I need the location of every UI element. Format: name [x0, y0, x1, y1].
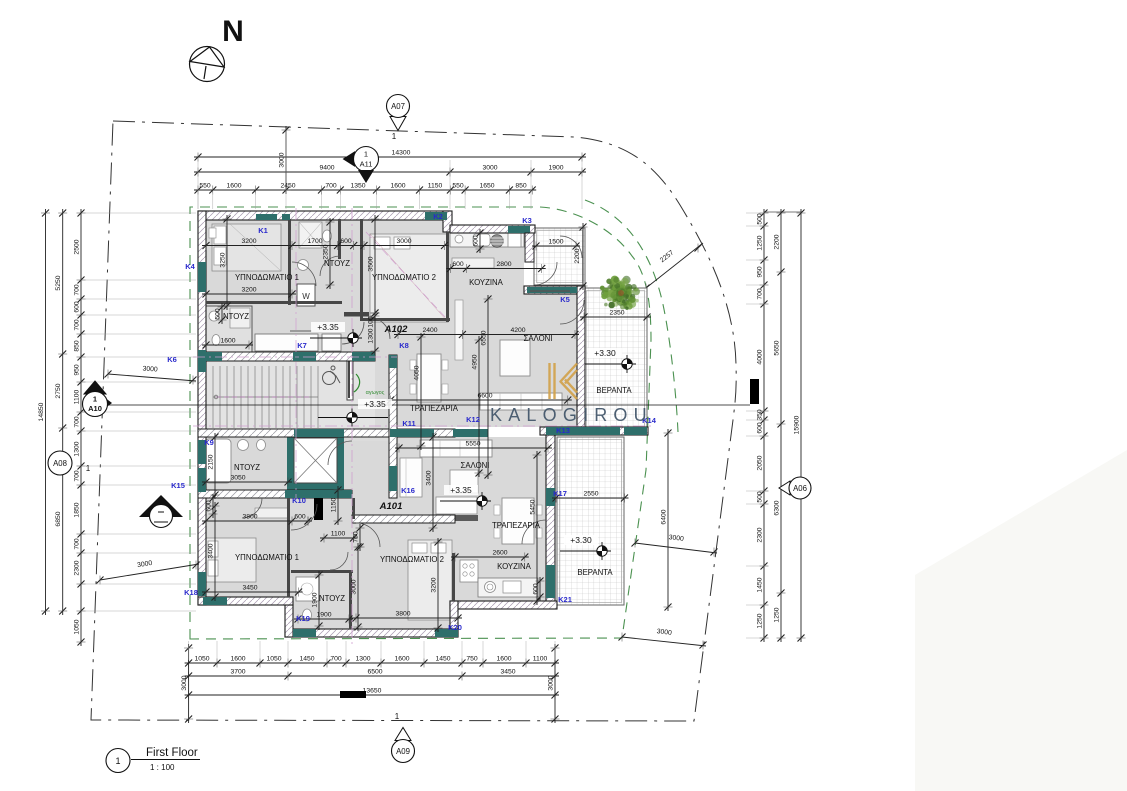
svg-text:700: 700	[757, 288, 764, 300]
svg-text:A10: A10	[88, 404, 102, 413]
svg-text:K12: K12	[466, 415, 480, 424]
svg-text:First Floor: First Floor	[146, 747, 198, 759]
svg-text:A06: A06	[793, 484, 807, 493]
svg-text:3800: 3800	[395, 611, 410, 618]
svg-text:1150: 1150	[331, 497, 338, 512]
svg-text:2500: 2500	[74, 239, 81, 254]
svg-text:1900: 1900	[316, 612, 331, 619]
svg-text:6300: 6300	[774, 500, 781, 515]
svg-text:3200: 3200	[241, 287, 256, 294]
svg-text:1150: 1150	[428, 183, 443, 190]
svg-text:ΚΟΥΖΙΝΑ: ΚΟΥΖΙΝΑ	[469, 278, 504, 287]
svg-text:W: W	[302, 292, 310, 301]
svg-text:14850: 14850	[38, 402, 45, 421]
svg-text:1: 1	[86, 464, 91, 473]
svg-text:A11: A11	[360, 160, 373, 169]
svg-text:ΝΤΟΥΖ: ΝΤΟΥΖ	[223, 312, 249, 321]
svg-text:950: 950	[757, 266, 764, 278]
svg-text:1900: 1900	[548, 165, 563, 172]
svg-text:6850: 6850	[55, 511, 62, 526]
svg-text:2300: 2300	[74, 560, 81, 575]
svg-text:ΤΡΑΠΕΖΑΡΙΑ: ΤΡΑΠΕΖΑΡΙΑ	[492, 521, 541, 530]
svg-text:2050: 2050	[757, 455, 764, 470]
svg-text:3250: 3250	[220, 252, 227, 267]
svg-text:700: 700	[74, 416, 81, 428]
svg-text:4950: 4950	[472, 354, 479, 369]
svg-text:ΝΤΟΥΖ: ΝΤΟΥΖ	[234, 463, 260, 472]
svg-text:N: N	[222, 15, 244, 48]
svg-text:5550: 5550	[465, 441, 480, 448]
svg-text:K19: K19	[296, 614, 310, 623]
svg-text:3000: 3000	[396, 238, 411, 245]
svg-text:ΥΠΝΟΔΩΜΑΤΙΟ 1: ΥΠΝΟΔΩΜΑΤΙΟ 1	[235, 273, 299, 282]
svg-text:ΝΤΟΥΖ: ΝΤΟΥΖ	[324, 259, 350, 268]
svg-text:3200: 3200	[241, 238, 256, 245]
svg-text:ΒΕΡΑΝΤΑ: ΒΕΡΑΝΤΑ	[596, 386, 632, 395]
svg-text:K15: K15	[171, 481, 185, 490]
svg-text:3000: 3000	[181, 675, 188, 690]
svg-text:K18: K18	[184, 588, 198, 597]
svg-text:1500: 1500	[548, 239, 563, 246]
svg-text:K17: K17	[553, 489, 567, 498]
svg-text:6500: 6500	[367, 669, 382, 676]
svg-text:2350: 2350	[609, 310, 624, 317]
svg-text:K10: K10	[292, 496, 306, 505]
svg-text:K16: K16	[401, 486, 415, 495]
svg-text:1600: 1600	[220, 338, 235, 345]
svg-text:2750: 2750	[55, 383, 62, 398]
svg-text:1250: 1250	[757, 613, 764, 628]
svg-text:2400: 2400	[422, 327, 437, 334]
svg-text:K9: K9	[204, 438, 214, 447]
svg-text:600: 600	[74, 301, 81, 313]
svg-text:950: 950	[74, 364, 81, 376]
svg-text:K6: K6	[167, 355, 177, 364]
svg-text:1450: 1450	[757, 577, 764, 592]
svg-text:6400: 6400	[661, 509, 668, 524]
svg-text:3000: 3000	[482, 165, 497, 172]
svg-text:1250: 1250	[757, 235, 764, 250]
svg-text:ΚΟΥΖΙΝΑ: ΚΟΥΖΙΝΑ	[497, 562, 532, 571]
svg-text:+3.35: +3.35	[450, 485, 472, 495]
svg-text:700: 700	[74, 470, 81, 482]
svg-text:1900: 1900	[312, 592, 319, 607]
svg-text:1300: 1300	[368, 328, 375, 343]
svg-text:1650: 1650	[479, 183, 494, 190]
svg-text:600: 600	[294, 514, 306, 521]
svg-text:+3.35: +3.35	[364, 399, 386, 409]
svg-text:15900: 15900	[794, 415, 801, 434]
svg-text:ΤΡΑΠΕΖΑΡΙΑ: ΤΡΑΠΕΖΑΡΙΑ	[410, 404, 459, 413]
svg-text:K13: K13	[556, 426, 570, 435]
svg-text:K2: K2	[433, 212, 443, 221]
svg-text:1450: 1450	[299, 656, 314, 663]
svg-text:2350: 2350	[323, 244, 330, 259]
svg-text:1100: 1100	[74, 389, 81, 404]
svg-text:K7: K7	[297, 341, 307, 350]
svg-text:1250: 1250	[774, 607, 781, 622]
svg-text:500: 500	[215, 308, 222, 320]
svg-text:3700: 3700	[230, 669, 245, 676]
svg-text:1050: 1050	[74, 619, 81, 634]
svg-text:6600: 6600	[477, 393, 492, 400]
svg-text:600: 600	[757, 422, 764, 434]
svg-text:K20: K20	[448, 623, 462, 632]
svg-text:1100: 1100	[331, 531, 346, 538]
svg-text:700: 700	[325, 183, 337, 190]
svg-text:A08: A08	[53, 459, 67, 468]
svg-text:A07: A07	[391, 102, 405, 111]
svg-text:K8: K8	[399, 341, 409, 350]
svg-text:3450: 3450	[500, 669, 515, 676]
svg-text:K5: K5	[560, 295, 570, 304]
svg-text:ΝΤΟΥΖ: ΝΤΟΥΖ	[319, 594, 345, 603]
svg-text:700: 700	[74, 319, 81, 331]
svg-text:1700: 1700	[307, 238, 322, 245]
svg-text:1: 1	[93, 395, 97, 404]
svg-text:1: 1	[395, 712, 400, 721]
svg-text:4050: 4050	[414, 365, 421, 380]
svg-text:3400: 3400	[426, 470, 433, 485]
svg-text:550: 550	[199, 183, 211, 190]
svg-text:850: 850	[74, 340, 81, 352]
svg-text:600: 600	[452, 261, 464, 268]
svg-text:1300: 1300	[74, 441, 81, 456]
svg-text:5650: 5650	[774, 340, 781, 355]
svg-text:600: 600	[340, 238, 352, 245]
svg-text:1050: 1050	[266, 656, 281, 663]
svg-text:3050: 3050	[230, 475, 245, 482]
svg-text:A101: A101	[379, 501, 403, 512]
svg-text:KALOGIROU: KALOGIROU	[490, 405, 653, 425]
svg-text:2200: 2200	[774, 234, 781, 249]
svg-text:2550: 2550	[583, 491, 598, 498]
svg-text:3500: 3500	[368, 256, 375, 271]
svg-text:3000: 3000	[279, 152, 286, 167]
svg-text:700: 700	[353, 531, 360, 543]
svg-text:600: 600	[473, 235, 480, 247]
svg-text:1600: 1600	[394, 656, 409, 663]
svg-text:5450: 5450	[530, 499, 537, 514]
svg-text:3450: 3450	[242, 585, 257, 592]
svg-text:3800: 3800	[242, 514, 257, 521]
svg-text:700: 700	[74, 538, 81, 550]
svg-text:ΣΑΛΟΝΙ: ΣΑΛΟΝΙ	[524, 334, 553, 343]
svg-text:600: 600	[533, 583, 540, 595]
svg-text:500: 500	[757, 213, 764, 225]
svg-text:1 : 100: 1 : 100	[150, 763, 175, 772]
svg-text:1850: 1850	[74, 502, 81, 517]
svg-text:1600: 1600	[496, 656, 511, 663]
svg-text:2800: 2800	[496, 261, 511, 268]
svg-text:750: 750	[466, 656, 478, 663]
svg-text:ΥΠΝΟΔΩΜΑΤΙΟ 2: ΥΠΝΟΔΩΜΑΤΙΟ 2	[372, 273, 436, 282]
svg-text:9400: 9400	[319, 165, 334, 172]
svg-text:850: 850	[515, 183, 527, 190]
svg-text:100: 100	[368, 316, 375, 328]
svg-text:+3.35: +3.35	[317, 322, 339, 332]
svg-text:ΒΕΡΑΝΤΑ: ΒΕΡΑΝΤΑ	[577, 568, 613, 577]
svg-text:1600: 1600	[390, 183, 405, 190]
svg-text:ΥΠΝΟΔΩΜΑΤΙΟ 1: ΥΠΝΟΔΩΜΑΤΙΟ 1	[235, 553, 299, 562]
svg-text:K1: K1	[258, 226, 268, 235]
svg-text:1600: 1600	[230, 656, 245, 663]
svg-text:+3.30: +3.30	[570, 535, 592, 545]
svg-text:2150: 2150	[208, 454, 215, 469]
svg-text:1600: 1600	[226, 183, 241, 190]
svg-text:2300: 2300	[757, 527, 764, 542]
svg-text:1: 1	[364, 150, 368, 159]
svg-text:ΥΠΝΟΔΩΜΑΤΙΟ 2: ΥΠΝΟΔΩΜΑΤΙΟ 2	[380, 555, 444, 564]
svg-text:2600: 2600	[492, 550, 507, 557]
svg-text:K4: K4	[185, 262, 195, 271]
svg-text:A09: A09	[396, 747, 410, 756]
svg-text:ΣΑΛΟΝΙ: ΣΑΛΟΝΙ	[461, 461, 490, 470]
svg-text:1: 1	[392, 132, 397, 141]
svg-text:αγωγος: αγωγος	[366, 390, 385, 396]
svg-text:K3: K3	[522, 216, 532, 225]
svg-text:3000: 3000	[548, 675, 555, 690]
svg-text:4000: 4000	[757, 349, 764, 364]
svg-text:1050: 1050	[194, 656, 209, 663]
svg-text:14300: 14300	[392, 150, 411, 157]
svg-text:3000: 3000	[351, 579, 358, 594]
svg-text:K21: K21	[558, 595, 572, 604]
svg-text:1100: 1100	[533, 656, 548, 663]
svg-text:1450: 1450	[435, 656, 450, 663]
svg-text:2200: 2200	[574, 248, 581, 263]
svg-text:550: 550	[452, 183, 464, 190]
svg-text:A102: A102	[384, 324, 408, 335]
svg-text:+3.30: +3.30	[594, 348, 616, 358]
svg-text:1: 1	[115, 756, 120, 766]
svg-text:1350: 1350	[350, 183, 365, 190]
svg-text:4200: 4200	[510, 327, 525, 334]
svg-text:3000: 3000	[142, 365, 158, 373]
svg-text:500: 500	[757, 491, 764, 503]
svg-text:1300: 1300	[355, 656, 370, 663]
svg-text:3400: 3400	[208, 543, 215, 558]
svg-text:K11: K11	[402, 419, 415, 428]
svg-text:700: 700	[330, 656, 342, 663]
svg-text:5250: 5250	[55, 275, 62, 290]
svg-text:3200: 3200	[431, 577, 438, 592]
svg-text:700: 700	[74, 284, 81, 296]
